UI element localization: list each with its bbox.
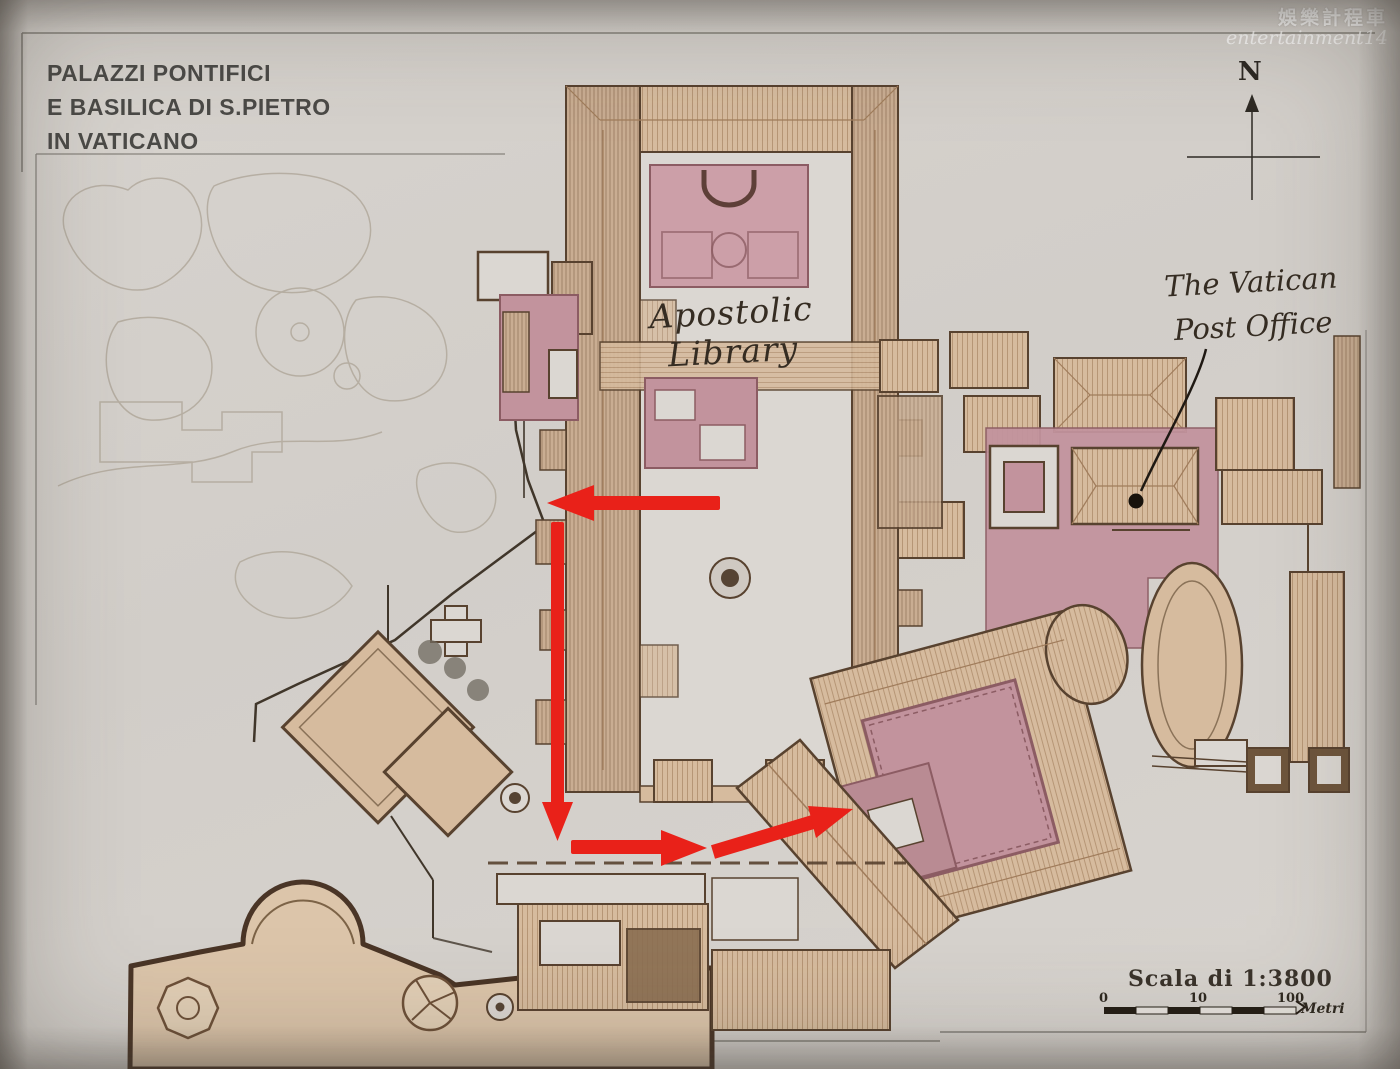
west-annex-buildings <box>478 252 592 420</box>
pigna-courtyard-building <box>650 165 808 287</box>
scale-bar <box>1104 1001 1305 1014</box>
vatican-gardens <box>58 173 496 618</box>
route-arrow-east <box>571 830 707 866</box>
garden-fountain <box>501 784 529 812</box>
post-office-dot <box>1129 494 1144 509</box>
vatican-plan-drawing <box>0 0 1400 1069</box>
round-bastion <box>1142 563 1242 767</box>
museum-building <box>1054 358 1186 432</box>
post-office-building <box>1072 448 1198 524</box>
vatican-map-photo: { "title": { "line1": "PALAZZI PONTIFICI… <box>0 0 1400 1069</box>
diamond-buildings <box>283 632 529 836</box>
belvedere-fountain <box>710 558 750 598</box>
north-arrow <box>1187 94 1320 200</box>
